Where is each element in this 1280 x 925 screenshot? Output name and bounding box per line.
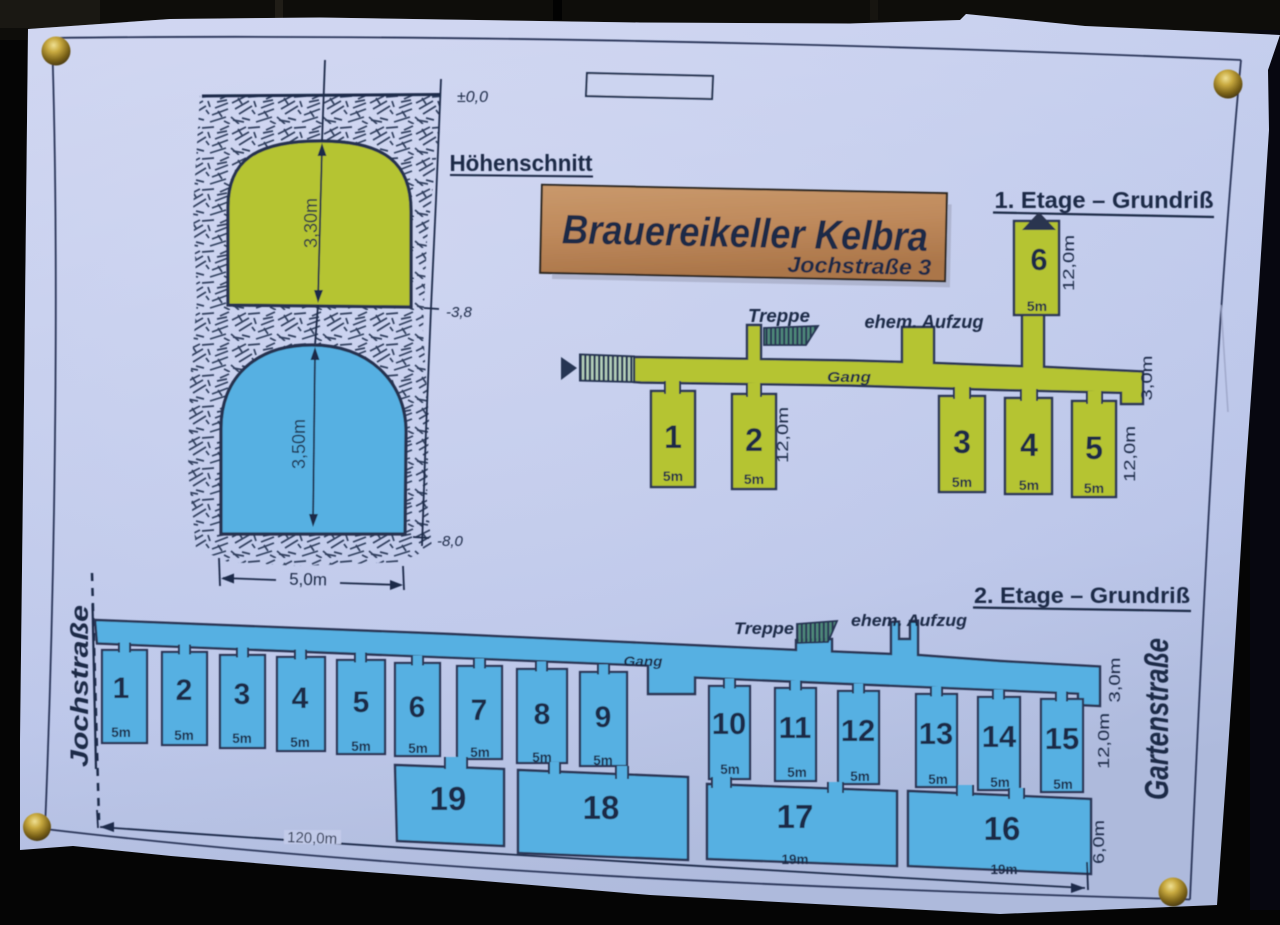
- svg-text:-3,8: -3,8: [446, 304, 473, 321]
- svg-text:19m: 19m: [781, 852, 808, 867]
- svg-text:3: 3: [953, 424, 971, 460]
- svg-text:6,0m: 6,0m: [1091, 820, 1108, 864]
- svg-text:5m: 5m: [720, 762, 740, 777]
- svg-text:5m: 5m: [663, 468, 683, 484]
- svg-text:Höhenschnitt: Höhenschnitt: [450, 150, 593, 176]
- svg-text:10: 10: [712, 706, 746, 741]
- svg-text:13: 13: [919, 716, 953, 751]
- svg-text:Brauereikeller Kelbra: Brauereikeller Kelbra: [562, 206, 929, 260]
- svg-text:Treppe: Treppe: [734, 619, 794, 638]
- svg-text:5m: 5m: [1027, 298, 1047, 314]
- svg-text:5m: 5m: [408, 741, 428, 756]
- svg-text:±0,0: ±0,0: [457, 89, 488, 106]
- svg-text:17: 17: [777, 798, 814, 835]
- svg-text:15: 15: [1045, 721, 1079, 756]
- svg-text:19m: 19m: [990, 862, 1017, 877]
- svg-text:7: 7: [471, 694, 488, 727]
- svg-text:12,0m: 12,0m: [1096, 713, 1113, 769]
- svg-text:2: 2: [176, 674, 193, 707]
- svg-text:5: 5: [353, 686, 370, 719]
- svg-text:3: 3: [234, 678, 251, 711]
- svg-text:1: 1: [664, 419, 682, 455]
- svg-text:5m: 5m: [290, 735, 310, 750]
- svg-text:1: 1: [113, 672, 130, 705]
- svg-text:ehem. Aufzug: ehem. Aufzug: [865, 312, 984, 332]
- svg-text:8: 8: [534, 698, 551, 731]
- svg-text:12: 12: [841, 713, 875, 748]
- svg-text:5m: 5m: [174, 728, 194, 743]
- svg-text:5m: 5m: [111, 725, 131, 740]
- svg-text:2: 2: [745, 422, 763, 458]
- svg-text:5m: 5m: [1053, 777, 1073, 792]
- svg-text:9: 9: [595, 701, 612, 734]
- svg-text:3,0m: 3,0m: [1107, 658, 1124, 703]
- svg-text:Gang: Gang: [827, 369, 871, 386]
- svg-text:5m: 5m: [744, 471, 764, 487]
- svg-text:Gartenstraße: Gartenstraße: [1138, 638, 1175, 800]
- svg-text:5m: 5m: [470, 745, 490, 760]
- svg-text:11: 11: [779, 710, 812, 745]
- svg-text:5m: 5m: [1019, 477, 1039, 493]
- svg-text:3,50m: 3,50m: [289, 419, 309, 469]
- svg-text:18: 18: [583, 789, 620, 826]
- svg-text:5m: 5m: [990, 775, 1010, 790]
- svg-text:5m: 5m: [1084, 480, 1104, 496]
- svg-text:5m: 5m: [952, 474, 972, 490]
- svg-text:120,0m: 120,0m: [287, 829, 338, 848]
- svg-text:12,0m: 12,0m: [775, 407, 792, 463]
- svg-text:3,0m: 3,0m: [1139, 356, 1156, 401]
- svg-text:Gang: Gang: [624, 654, 664, 669]
- svg-text:14: 14: [982, 719, 1017, 754]
- svg-text:5,0m: 5,0m: [289, 570, 327, 590]
- svg-text:5: 5: [1085, 430, 1103, 466]
- svg-text:5m: 5m: [232, 731, 252, 746]
- svg-text:3,30m: 3,30m: [301, 198, 321, 248]
- svg-text:19: 19: [430, 780, 467, 817]
- svg-text:-8,0: -8,0: [437, 533, 464, 550]
- svg-text:2. Etage – Grundriß: 2. Etage – Grundriß: [974, 583, 1190, 608]
- svg-text:Treppe: Treppe: [748, 306, 810, 326]
- svg-text:5m: 5m: [593, 753, 613, 768]
- svg-text:6: 6: [409, 691, 426, 724]
- svg-text:5m: 5m: [928, 772, 948, 787]
- svg-text:5m: 5m: [850, 769, 870, 784]
- svg-text:12,0m: 12,0m: [1122, 426, 1139, 482]
- svg-text:5m: 5m: [787, 765, 807, 780]
- svg-text:4: 4: [292, 682, 309, 715]
- svg-text:ehem. Aufzug: ehem. Aufzug: [851, 611, 968, 630]
- svg-text:Jochstraße 3: Jochstraße 3: [787, 252, 931, 280]
- svg-text:4: 4: [1020, 427, 1038, 463]
- svg-text:1. Etage – Grundriß: 1. Etage – Grundriß: [995, 187, 1214, 213]
- svg-text:16: 16: [984, 810, 1021, 847]
- svg-text:Jochstraße: Jochstraße: [66, 605, 94, 767]
- svg-text:5m: 5m: [351, 739, 371, 754]
- svg-text:6: 6: [1030, 242, 1047, 277]
- svg-text:12,0m: 12,0m: [1061, 235, 1078, 291]
